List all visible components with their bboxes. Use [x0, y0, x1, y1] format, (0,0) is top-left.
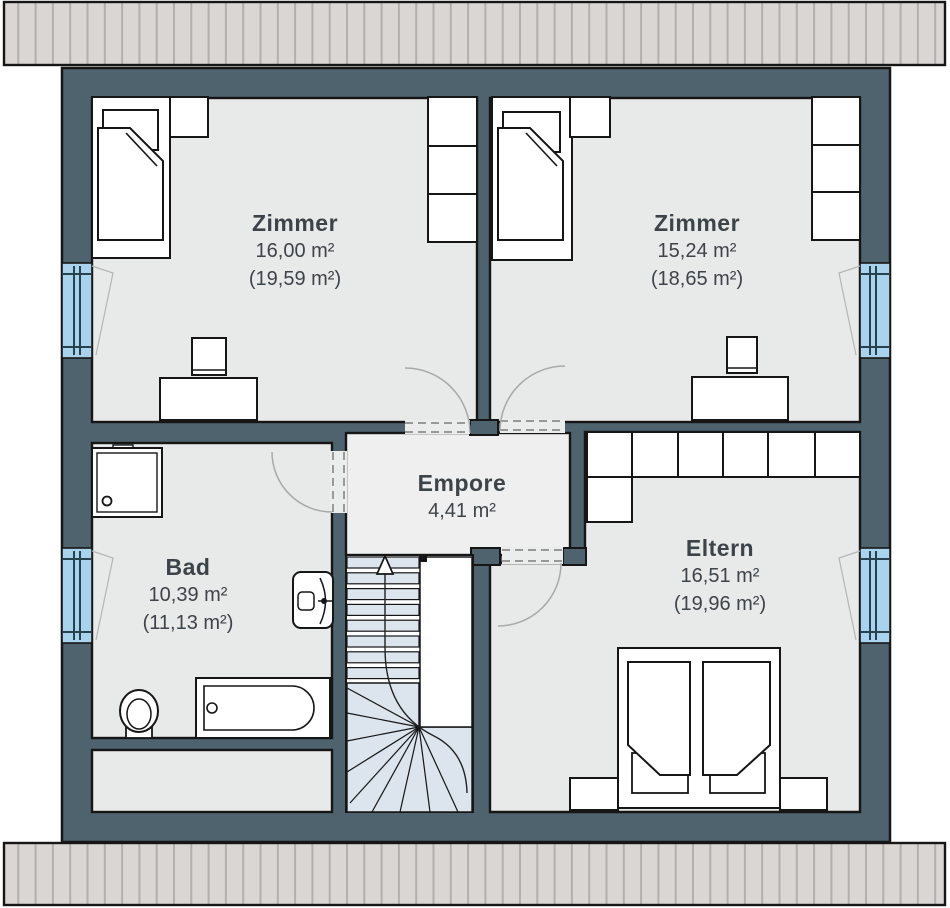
bathtub: [196, 678, 330, 738]
desk: [160, 378, 257, 420]
shelf: [570, 97, 610, 137]
roof-strip-bottom: [4, 843, 945, 905]
room-storage-floor: [92, 750, 332, 812]
wardrobe-cell: [587, 477, 632, 522]
washbasin: [293, 572, 333, 628]
staircase: [346, 555, 473, 812]
nightstand-left: [570, 778, 618, 810]
shower: [92, 445, 162, 517]
wardrobe: [428, 97, 477, 242]
room-empore-floor: [346, 433, 570, 555]
shelf: [170, 97, 208, 137]
roof-strip-top: [4, 2, 945, 65]
floor-plan-drawing: [0, 0, 950, 908]
desk: [692, 377, 788, 420]
nightstand-right: [780, 778, 827, 810]
floor-plan: Zimmer 16,00 m² (19,59 m²) Zimmer 15,24 …: [0, 0, 950, 908]
wardrobe: [812, 97, 860, 240]
toilet: [120, 690, 158, 738]
stair-void: [420, 557, 472, 727]
stair-newel-post: [419, 556, 427, 562]
